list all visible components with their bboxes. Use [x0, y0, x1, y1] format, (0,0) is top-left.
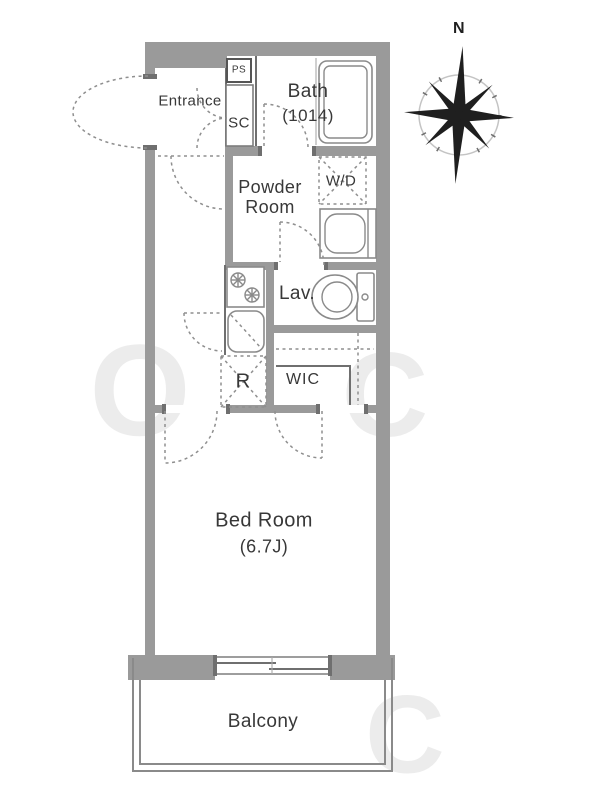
washer-dryer-label: W/D	[326, 173, 356, 190]
bath-size-label: (1014)	[282, 106, 334, 126]
toilet	[312, 273, 374, 321]
kitchenette	[225, 265, 264, 355]
cooktop	[227, 267, 264, 307]
balcony-label: Balcony	[228, 711, 298, 733]
compass-rose	[400, 43, 517, 187]
compass-north-label: N	[453, 20, 465, 38]
sliding-window	[213, 655, 332, 676]
bath-label: Bath	[288, 81, 329, 103]
refrigerator-label: R	[236, 371, 251, 394]
bedroom-label: Bed Room	[215, 510, 313, 533]
burner-icon	[231, 273, 245, 287]
wic-label: WIC	[286, 371, 320, 389]
washbasin	[320, 209, 376, 258]
pipe-space-label: PS	[232, 65, 246, 76]
powder-room-label: Powder Room	[215, 177, 325, 217]
entrance-label: Entrance	[158, 93, 221, 110]
bedroom-size-label: (6.7J)	[240, 537, 288, 558]
wic-interior	[276, 333, 374, 405]
lavatory-label: Lav.	[279, 283, 315, 305]
floor-plan: O C C	[0, 0, 600, 800]
shoe-closet-label: SC	[228, 115, 250, 132]
burner-icon	[245, 288, 259, 302]
